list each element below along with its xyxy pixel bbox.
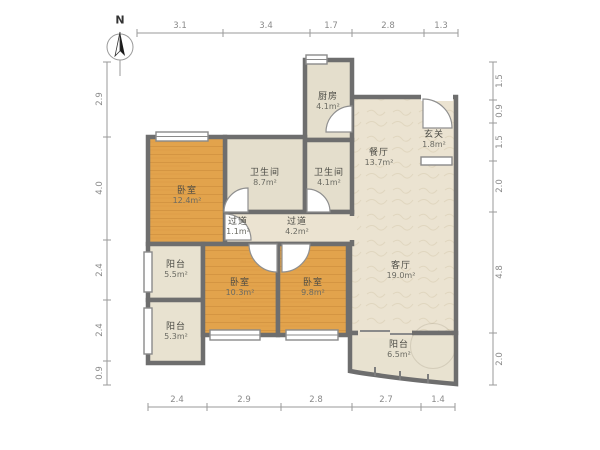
shoe-cabinet	[421, 157, 452, 165]
dim-bottom-5: 1.4	[431, 395, 445, 405]
north-compass	[107, 32, 133, 76]
dim-left-4: 2.4	[95, 323, 105, 337]
dim-right-4: 2.0	[495, 179, 505, 193]
floor-plan-drawing	[0, 0, 600, 450]
watermark-circle	[410, 323, 456, 369]
dim-top-5: 1.3	[434, 21, 448, 31]
window-balcony-upper	[144, 252, 152, 292]
room-bedroom-master	[148, 137, 225, 244]
opening-hall-living	[347, 216, 357, 240]
room-dining-living	[350, 97, 456, 333]
north-label: N	[115, 14, 124, 27]
dim-bottom-1: 2.4	[170, 395, 184, 405]
dim-bottom-4: 2.7	[379, 395, 393, 405]
dim-left-2: 4.0	[95, 181, 105, 195]
dim-right-2: 0.9	[495, 104, 505, 118]
dim-right-3: 1.5	[495, 135, 505, 149]
dim-right-6: 2.0	[495, 352, 505, 366]
dim-left-3: 2.4	[95, 263, 105, 277]
compass-needle-dark	[120, 32, 125, 56]
floor-plan-canvas: N 卧室12.4m² 卫生间8.7m² 卫生间4.1m² 厨房4.1m² 餐厅1…	[0, 0, 600, 450]
dim-bottom-3: 2.8	[309, 395, 323, 405]
dim-top-3: 1.7	[324, 21, 338, 31]
room-balcony-west-lower	[148, 300, 203, 363]
dim-left-5: 0.9	[95, 366, 105, 380]
dim-bottom-2: 2.9	[237, 395, 251, 405]
dim-top-4: 2.8	[381, 21, 395, 31]
dim-left-1: 2.9	[95, 92, 105, 106]
compass-needle-light	[115, 32, 120, 56]
dim-right-1: 1.5	[495, 74, 505, 88]
room-balcony-west-upper	[148, 244, 203, 300]
dim-top-2: 3.4	[259, 21, 273, 31]
dim-top-1: 3.1	[173, 21, 187, 31]
dim-right-5: 4.8	[495, 265, 505, 279]
window-balcony-lower	[144, 308, 152, 354]
